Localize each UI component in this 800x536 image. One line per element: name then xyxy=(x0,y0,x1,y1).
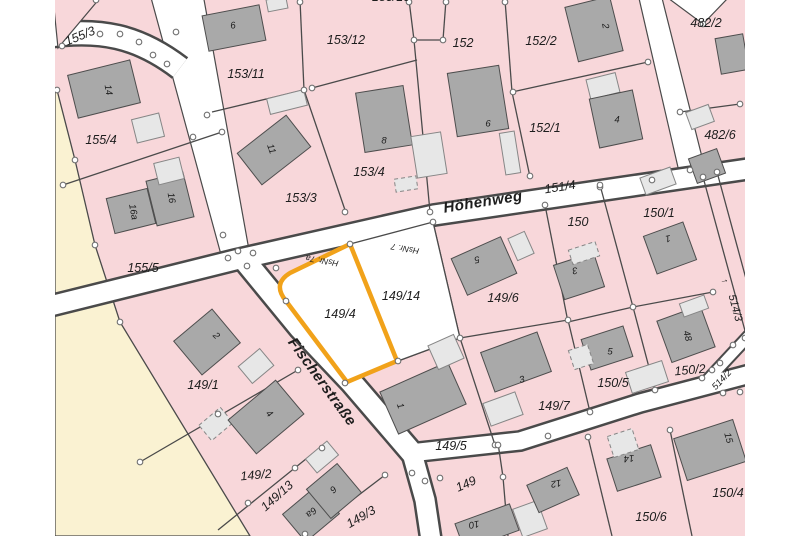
vertex-dot xyxy=(164,61,170,67)
vertex-dot xyxy=(717,360,723,366)
vertex-dot xyxy=(440,37,446,43)
map-margin-left xyxy=(0,0,55,536)
parcel-number-label: 149/5 xyxy=(435,439,466,453)
parcel-number-label: 152 xyxy=(453,36,474,50)
vertex-dot xyxy=(301,87,307,93)
vertex-dot xyxy=(585,434,591,440)
vertex-dot xyxy=(342,380,348,386)
vertex-dot xyxy=(457,335,463,341)
vertex-dot xyxy=(273,265,279,271)
vertex-dot xyxy=(737,101,743,107)
vertex-dot xyxy=(150,52,156,58)
parcel-number-label: 153/10 xyxy=(372,0,410,4)
vertex-dot xyxy=(649,177,655,183)
vertex-dot xyxy=(409,470,415,476)
vertex-dot xyxy=(225,255,231,261)
vertex-dot xyxy=(587,409,593,415)
parcel-number-label: 152/2 xyxy=(525,34,556,48)
parcel-number-label: 150/6 xyxy=(635,510,666,524)
vertex-dot xyxy=(283,298,289,304)
parcel-number-label: 153/11 xyxy=(227,67,264,81)
vertex-dot xyxy=(219,129,225,135)
parcel-number-label: 149/2 xyxy=(240,467,272,484)
parcel-number-label: 149/1 xyxy=(187,378,218,392)
vertex-dot xyxy=(136,39,142,45)
vertex-dot xyxy=(500,474,506,480)
parcel-number-label: 155/4 xyxy=(85,133,116,147)
vertex-dot xyxy=(502,0,508,5)
parcel-number-label: 482/6 xyxy=(704,128,735,142)
vertex-dot xyxy=(59,43,65,49)
vertex-dot xyxy=(737,389,743,395)
parcel-number-label: 153/12 xyxy=(327,33,365,47)
vertex-dot xyxy=(92,242,98,248)
parcel-number-label: 153/3 xyxy=(285,191,316,205)
vertex-dot xyxy=(730,342,736,348)
vertex-dot xyxy=(443,0,449,5)
vertex-dot xyxy=(495,442,501,448)
vertex-dot xyxy=(292,465,298,471)
parcel-number-label: 149/6 xyxy=(487,291,518,305)
map-viewport: 155/3155/4155/5153/11153/12153/10153/315… xyxy=(0,0,800,536)
building xyxy=(715,34,749,74)
vertex-dot xyxy=(97,31,103,37)
vertex-dot xyxy=(700,174,706,180)
house-number-label: 14 xyxy=(623,452,634,464)
parcel-number-label: 152/1 xyxy=(529,121,560,135)
vertex-dot xyxy=(60,182,66,188)
building xyxy=(447,65,508,136)
vertex-dot xyxy=(565,317,571,323)
vertex-dot xyxy=(54,87,60,93)
vertex-dot xyxy=(395,358,401,364)
vertex-dot xyxy=(545,433,551,439)
house-number-label: 6 xyxy=(485,119,491,130)
vertex-dot xyxy=(245,500,251,506)
parcel-number-label: 149/4 xyxy=(324,307,355,321)
house-number-label: 5 xyxy=(607,347,613,358)
house-number-label: 14 xyxy=(102,84,115,96)
map-margin-right xyxy=(745,0,800,536)
vertex-dot xyxy=(72,157,78,163)
vertex-dot xyxy=(295,367,301,373)
vertex-dot xyxy=(347,241,353,247)
parcel-number-label: 149/7 xyxy=(538,399,570,413)
vertex-dot xyxy=(630,304,636,310)
vertex-dot xyxy=(137,459,143,465)
house-number-label: 8 xyxy=(381,136,387,147)
parcel-number-label: 150/2 xyxy=(674,362,706,379)
garage-building xyxy=(411,132,447,178)
cadastral-map-canvas[interactable]: 155/3155/4155/5153/11153/12153/10153/315… xyxy=(0,0,800,536)
vertex-dot xyxy=(117,31,123,37)
vertex-dot xyxy=(677,109,683,115)
vertex-dot xyxy=(342,209,348,215)
vertex-dot xyxy=(687,167,693,173)
vertex-dot xyxy=(190,134,196,140)
parcel-number-label: 150 xyxy=(568,215,589,229)
vertex-dot xyxy=(220,232,226,238)
vertex-dot xyxy=(319,445,325,451)
vertex-dot xyxy=(437,475,443,481)
vertex-dot xyxy=(382,472,388,478)
garage-building xyxy=(394,176,418,192)
vertex-dot xyxy=(250,250,256,256)
vertex-dot xyxy=(709,367,715,373)
parcel-number-label: 155/5 xyxy=(127,261,158,275)
parcel-number-label: 150/4 xyxy=(712,486,743,500)
vertex-dot xyxy=(235,248,241,254)
parcel-number-label: 149/14 xyxy=(382,289,420,303)
vertex-dot xyxy=(309,85,315,91)
vertex-dot xyxy=(430,219,436,225)
vertex-dot xyxy=(422,478,428,484)
vertex-dot xyxy=(173,29,179,35)
vertex-dot xyxy=(302,531,308,536)
parcel-number-label: 153/4 xyxy=(353,165,384,179)
vertex-dot xyxy=(117,319,123,325)
vertex-dot xyxy=(527,173,533,179)
vertex-dot xyxy=(297,0,303,5)
vertex-dot xyxy=(720,390,726,396)
vertex-dot xyxy=(652,387,658,393)
vertex-dot xyxy=(714,169,720,175)
vertex-dot xyxy=(204,112,210,118)
vertex-dot xyxy=(510,89,516,95)
vertex-dot xyxy=(645,59,651,65)
parcel-number-label: 150/5 xyxy=(597,376,628,390)
vertex-dot xyxy=(244,263,250,269)
vertex-dot xyxy=(215,411,221,417)
vertex-dot xyxy=(667,427,673,433)
parcel-number-label: 482/2 xyxy=(690,16,721,30)
vertex-dot xyxy=(427,209,433,215)
parcel-number-label: 150/1 xyxy=(643,206,674,220)
vertex-dot xyxy=(542,202,548,208)
vertex-dot xyxy=(710,289,716,295)
house-number-label: 4 xyxy=(614,115,619,126)
vertex-dot xyxy=(93,0,99,3)
vertex-dot xyxy=(411,37,417,43)
vertex-dot xyxy=(597,182,603,188)
